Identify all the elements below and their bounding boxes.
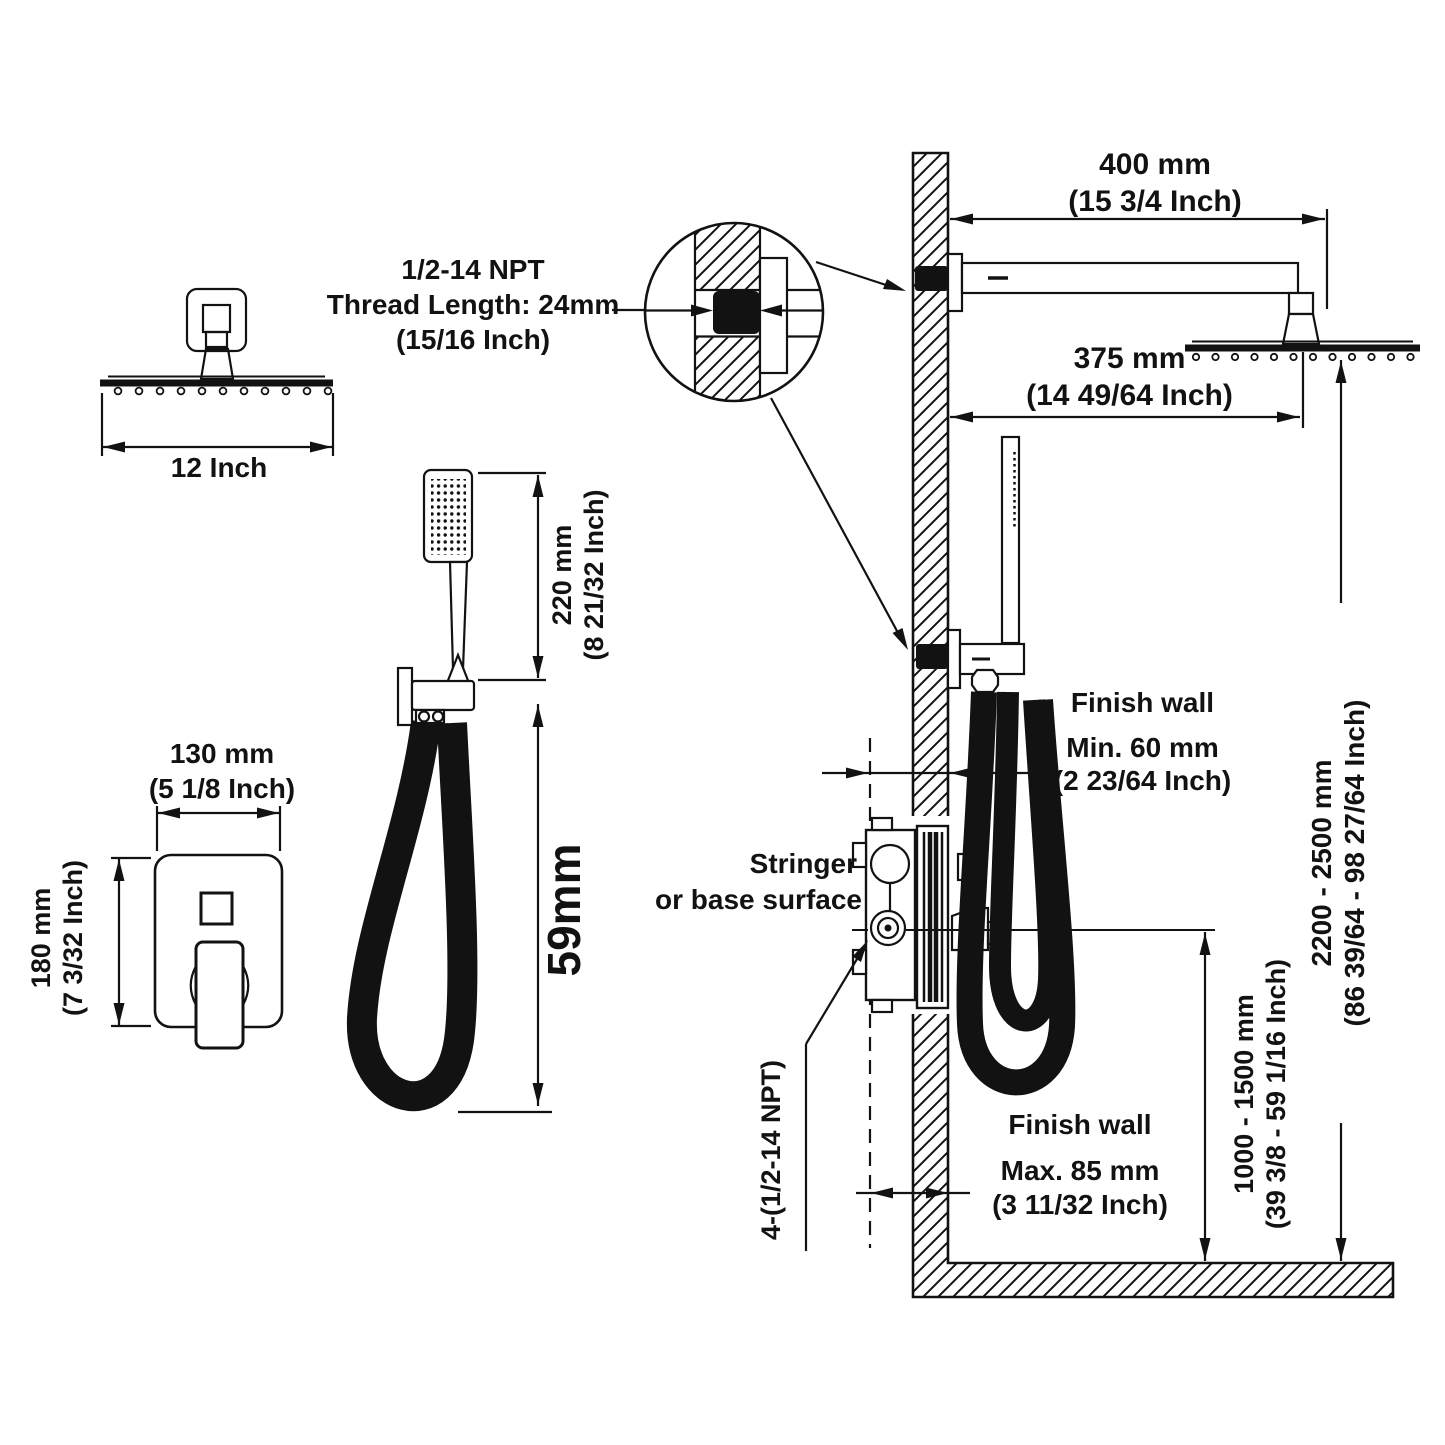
handshower-length-inch: (8 21/32 Inch) (578, 475, 610, 675)
dim-180-lines (111, 858, 151, 1026)
hand-shower-front-view (362, 470, 552, 1112)
label-max-depth: Finish wall Max. 85 mm (3 11/32 Inch) (965, 1108, 1195, 1222)
label-head-offset: 375 mm (14 49/64 Inch) (1002, 340, 1257, 414)
valve-mount-height-inch: (39 3/8 - 59 1/16 Inch) (1260, 939, 1292, 1249)
valve-trim-front-view (111, 806, 282, 1048)
label-arm-length: 400 mm (15 3/4 Inch) (1030, 146, 1280, 220)
min-depth-inch: (2 23/64 Inch) (1035, 764, 1250, 797)
head-offset-inch: (14 49/64 Inch) (1002, 377, 1257, 414)
label-npt-ports: 4-(1/2-14 NPT) (755, 1045, 787, 1255)
valve-height-mm: 180 mm (25, 838, 57, 1038)
label-head-mount-height: 2200 - 2500 mm (86 39/64 - 98 27/64 Inch… (1303, 603, 1373, 1123)
dim-1000-1500-lines (1200, 932, 1211, 1261)
handshower-spray-face (431, 479, 466, 555)
stringer-line1: Stringer (655, 846, 857, 882)
arm-thread-block (915, 266, 948, 291)
thread-block-detail (713, 291, 760, 334)
min-depth-title: Finish wall (1035, 686, 1250, 719)
thread-detail-circle (612, 218, 908, 650)
stringer-line2: or base surface (655, 882, 857, 918)
valve-width-inch: (5 1/8 Inch) (122, 771, 322, 806)
detail-leader-lines (771, 262, 908, 650)
label-valve-mount-height: 1000 - 1500 mm (39 3/8 - 59 1/16 Inch) (1228, 939, 1292, 1249)
max-depth-title: Finish wall (965, 1108, 1195, 1142)
valve-mount-height-mm: 1000 - 1500 mm (1228, 939, 1260, 1249)
thread-note-line2: Thread Length: 24mm (318, 287, 628, 322)
label-valve-width: 130 mm (5 1/8 Inch) (122, 736, 322, 806)
label-handshower-length: 220 mm (8 21/32 Inch) (546, 475, 610, 675)
label-hose-drop: 59mm (539, 830, 589, 990)
min-depth-mm: Min. 60 mm (1035, 731, 1250, 764)
installation-diagram: 12 Inch 1/2-14 NPT Thread Length: 24mm (… (0, 0, 1445, 1445)
head-mount-height-mm: 2200 - 2500 mm (1305, 603, 1338, 1123)
rain-head-front-view (100, 289, 333, 456)
spray-nozzles (115, 388, 332, 395)
label-valve-height: 180 mm (7 3/32 Inch) (25, 838, 89, 1038)
max-depth-inch: (3 11/32 Inch) (965, 1188, 1195, 1222)
label-min-depth: Finish wall Min. 60 mm (2 23/64 Inch) (1035, 686, 1250, 797)
label-thread-note: 1/2-14 NPT Thread Length: 24mm (15/16 In… (318, 252, 628, 357)
valve-height-inch: (7 3/32 Inch) (57, 838, 89, 1038)
dim-220-lines (478, 473, 546, 680)
dim-130-lines (157, 806, 280, 851)
dim-12inch-lines (102, 393, 333, 456)
head-mount-height-inch: (86 39/64 - 98 27/64 Inch) (1338, 603, 1371, 1123)
label-head-width: 12 Inch (138, 451, 300, 486)
valve-width-mm: 130 mm (122, 736, 322, 771)
head-offset-mm: 375 mm (1002, 340, 1257, 377)
max-depth-mm: Max. 85 mm (965, 1154, 1195, 1188)
arm-length-mm: 400 mm (1030, 146, 1280, 183)
thread-note-line3: (15/16 Inch) (318, 322, 628, 357)
bracket-thread-block (916, 644, 948, 669)
label-stringer: Stringer or base surface (655, 846, 857, 918)
handshower-bracket-front (412, 681, 474, 710)
npt-ports-leader (806, 940, 868, 1251)
arm-length-inch: (15 3/4 Inch) (1030, 183, 1280, 220)
handshower-length-mm: 220 mm (546, 475, 578, 675)
thread-note-line1: 1/2-14 NPT (318, 252, 628, 287)
valve-handle (196, 942, 243, 1048)
